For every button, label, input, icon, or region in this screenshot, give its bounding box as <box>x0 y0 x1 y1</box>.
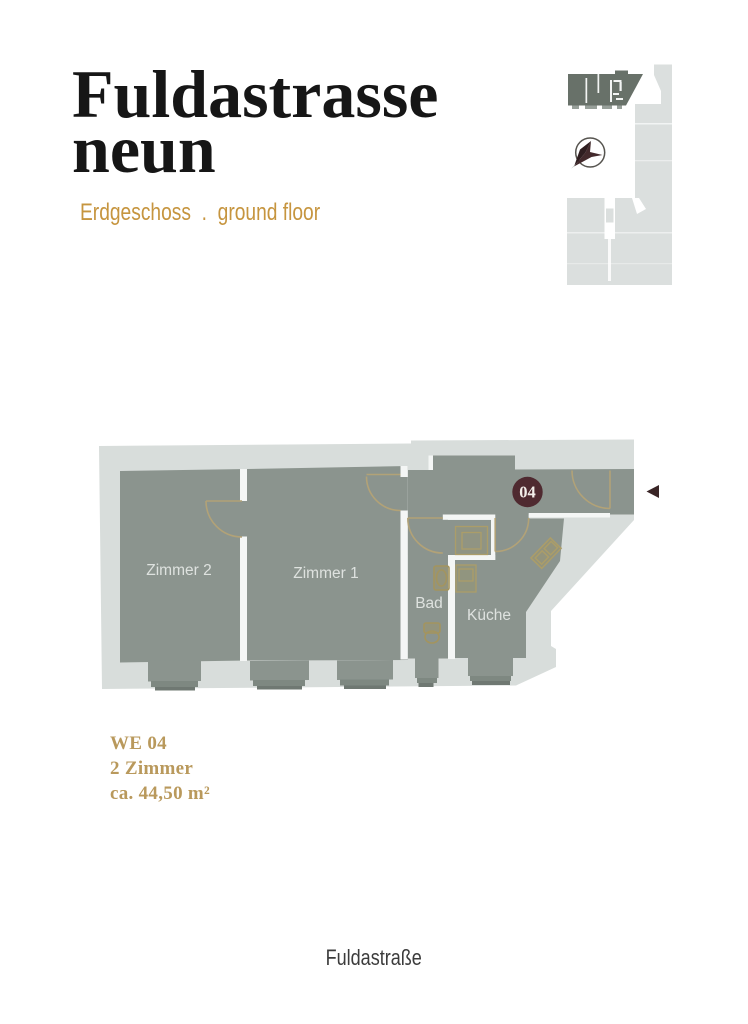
svg-text:Zimmer 2: Zimmer 2 <box>146 562 211 579</box>
svg-text:Küche: Küche <box>467 607 511 624</box>
svg-text:Zimmer 1: Zimmer 1 <box>293 565 358 582</box>
svg-text:04: 04 <box>519 483 536 502</box>
svg-text:Bad: Bad <box>415 595 443 612</box>
